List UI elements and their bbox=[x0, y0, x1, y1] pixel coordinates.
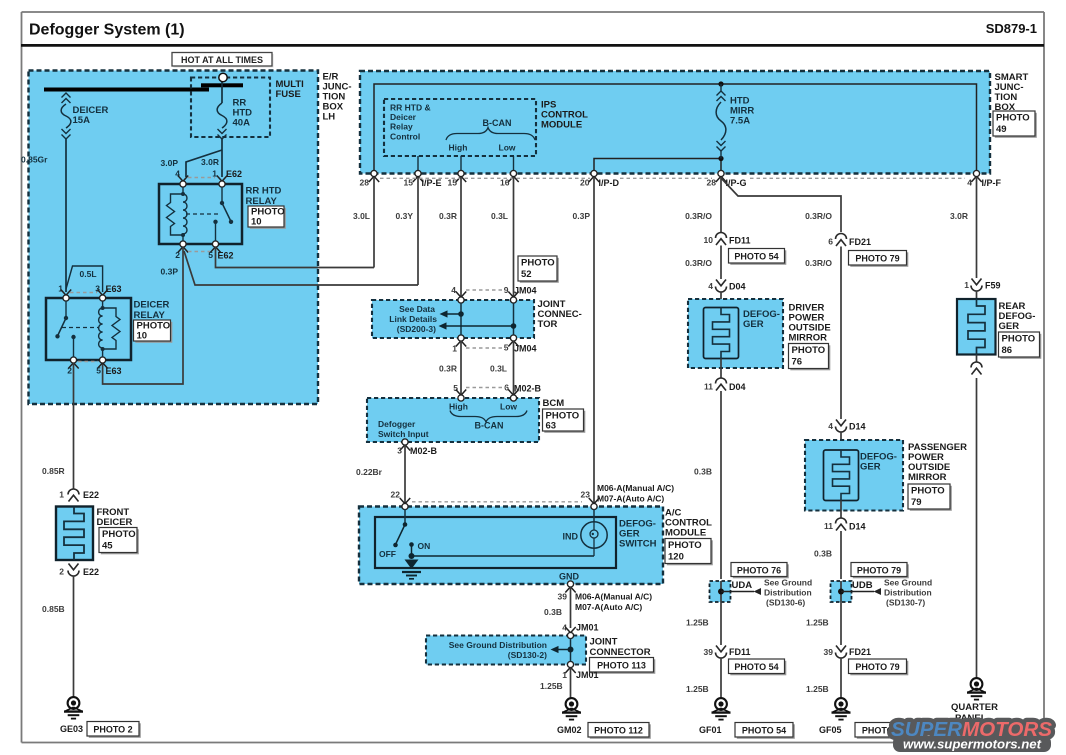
svg-text:Defogger: Defogger bbox=[378, 419, 416, 429]
svg-text:39: 39 bbox=[704, 647, 714, 657]
svg-text:5: 5 bbox=[96, 366, 101, 376]
svg-text:JM04: JM04 bbox=[514, 344, 537, 354]
svg-text:QUARTER: QUARTER bbox=[951, 702, 998, 713]
svg-text:76: 76 bbox=[792, 357, 803, 368]
svg-text:2: 2 bbox=[59, 567, 64, 577]
svg-text:79: 79 bbox=[911, 497, 922, 508]
svg-text:0.22Br: 0.22Br bbox=[356, 467, 383, 477]
svg-text:4: 4 bbox=[967, 178, 972, 188]
svg-text:6: 6 bbox=[828, 237, 833, 247]
svg-text:BCM: BCM bbox=[543, 398, 565, 409]
svg-text:(SD130-6): (SD130-6) bbox=[766, 598, 805, 608]
svg-text:IND: IND bbox=[563, 532, 579, 542]
svg-text:GND: GND bbox=[559, 572, 580, 582]
svg-text:RR HTD &: RR HTD & bbox=[390, 103, 431, 113]
svg-text:PHOTO 113: PHOTO 113 bbox=[597, 661, 646, 671]
svg-text:M07-A(Auto A/C): M07-A(Auto A/C) bbox=[575, 602, 642, 612]
svg-text:SWITCH: SWITCH bbox=[619, 539, 657, 550]
svg-text:10: 10 bbox=[251, 217, 262, 228]
svg-text:0.3L: 0.3L bbox=[491, 211, 508, 221]
svg-text:B-CAN: B-CAN bbox=[475, 421, 504, 431]
svg-text:0.3R/O: 0.3R/O bbox=[805, 258, 832, 268]
svg-text:1.25B: 1.25B bbox=[686, 684, 709, 694]
svg-text:39: 39 bbox=[558, 592, 568, 602]
svg-text:1: 1 bbox=[562, 670, 567, 680]
svg-text:LH: LH bbox=[323, 112, 336, 123]
svg-text:PHOTO 112: PHOTO 112 bbox=[594, 726, 643, 736]
svg-text:0.3R: 0.3R bbox=[439, 211, 457, 221]
svg-text:DEICER: DEICER bbox=[97, 517, 133, 528]
svg-text:39: 39 bbox=[824, 647, 834, 657]
svg-text:1.25B: 1.25B bbox=[686, 618, 709, 628]
svg-text:49: 49 bbox=[996, 124, 1007, 135]
svg-text:Switch Input: Switch Input bbox=[378, 429, 429, 439]
svg-text:0.3B: 0.3B bbox=[544, 607, 562, 617]
svg-text:3.0R: 3.0R bbox=[950, 211, 968, 221]
svg-text:D14: D14 bbox=[849, 422, 866, 432]
svg-text:See Ground: See Ground bbox=[884, 578, 932, 588]
svg-text:JOINT: JOINT bbox=[590, 637, 618, 648]
svg-text:86: 86 bbox=[1002, 345, 1013, 356]
svg-text:I/P-F: I/P-F bbox=[982, 178, 1002, 188]
svg-text:TOR: TOR bbox=[538, 319, 558, 330]
svg-text:MODULE: MODULE bbox=[541, 120, 582, 131]
svg-text:28: 28 bbox=[360, 178, 370, 188]
svg-text:JM01: JM01 bbox=[576, 623, 599, 633]
svg-text:0.3B: 0.3B bbox=[694, 467, 712, 477]
svg-text:1.25B: 1.25B bbox=[806, 618, 829, 628]
svg-text:SD879-1: SD879-1 bbox=[986, 21, 1037, 36]
svg-text:3.0L: 3.0L bbox=[353, 211, 370, 221]
svg-text:PHOTO: PHOTO bbox=[911, 486, 945, 497]
svg-text:63: 63 bbox=[546, 421, 557, 432]
svg-text:MIRROR: MIRROR bbox=[789, 333, 828, 344]
svg-text:D04: D04 bbox=[729, 282, 746, 292]
svg-text:www.supermotors.net: www.supermotors.net bbox=[903, 737, 1042, 752]
svg-text:PHOTO: PHOTO bbox=[102, 529, 136, 540]
svg-text:PHOTO 2: PHOTO 2 bbox=[93, 725, 132, 735]
svg-text:E62: E62 bbox=[226, 169, 242, 179]
svg-text:0.3P: 0.3P bbox=[573, 211, 591, 221]
svg-text:PHOTO 54: PHOTO 54 bbox=[742, 726, 786, 736]
svg-text:9: 9 bbox=[504, 285, 509, 295]
svg-text:See Ground Distribution: See Ground Distribution bbox=[449, 640, 547, 650]
svg-text:15: 15 bbox=[404, 178, 414, 188]
svg-text:OFF: OFF bbox=[379, 549, 396, 559]
svg-text:UDB: UDB bbox=[852, 580, 873, 591]
svg-text:See Data: See Data bbox=[399, 304, 435, 314]
svg-text:Defogger System (1): Defogger System (1) bbox=[29, 22, 185, 39]
svg-text:HOT AT ALL TIMES: HOT AT ALL TIMES bbox=[181, 55, 263, 65]
svg-text:M06-A(Manual A/C): M06-A(Manual A/C) bbox=[597, 483, 674, 493]
svg-text:PHOTO 79: PHOTO 79 bbox=[855, 254, 899, 264]
svg-text:0.3L: 0.3L bbox=[490, 364, 507, 374]
svg-text:20: 20 bbox=[580, 178, 590, 188]
svg-text:28: 28 bbox=[707, 178, 717, 188]
svg-text:E22: E22 bbox=[83, 490, 99, 500]
svg-text:GER: GER bbox=[860, 462, 881, 473]
svg-text:11: 11 bbox=[824, 521, 833, 531]
svg-text:23: 23 bbox=[581, 490, 591, 500]
svg-text:MODULE: MODULE bbox=[665, 528, 706, 539]
svg-text:(SD130-7): (SD130-7) bbox=[886, 598, 925, 608]
svg-text:16: 16 bbox=[500, 178, 510, 188]
svg-text:15A: 15A bbox=[73, 115, 91, 126]
svg-text:M02-B: M02-B bbox=[410, 446, 438, 456]
svg-text:0.3P: 0.3P bbox=[161, 267, 179, 277]
svg-text:1.25B: 1.25B bbox=[806, 684, 829, 694]
svg-text:MIRROR: MIRROR bbox=[908, 472, 947, 483]
svg-text:E62: E62 bbox=[218, 251, 234, 261]
svg-text:D14: D14 bbox=[849, 522, 866, 532]
svg-text:M06-A(Manual A/C): M06-A(Manual A/C) bbox=[575, 592, 652, 602]
svg-text:45: 45 bbox=[102, 541, 113, 552]
svg-text:2: 2 bbox=[175, 250, 180, 260]
svg-text:1.25B: 1.25B bbox=[540, 681, 563, 691]
svg-text:F59: F59 bbox=[985, 281, 1001, 291]
svg-text:B-CAN: B-CAN bbox=[483, 118, 512, 128]
svg-text:Low: Low bbox=[500, 402, 517, 412]
svg-text:0.85Gr: 0.85Gr bbox=[21, 155, 48, 165]
svg-text:PHOTO: PHOTO bbox=[792, 345, 826, 356]
svg-text:See Ground: See Ground bbox=[764, 578, 812, 588]
svg-text:3: 3 bbox=[397, 446, 402, 456]
svg-text:FD11: FD11 bbox=[729, 236, 751, 246]
svg-text:High: High bbox=[449, 143, 468, 153]
svg-text:RELAY: RELAY bbox=[134, 310, 166, 321]
svg-text:JM01: JM01 bbox=[576, 670, 599, 680]
svg-text:0.3R: 0.3R bbox=[439, 364, 457, 374]
svg-text:Distribution: Distribution bbox=[884, 588, 932, 598]
svg-text:PHOTO 79: PHOTO 79 bbox=[855, 662, 899, 672]
svg-text:UDA: UDA bbox=[732, 580, 753, 591]
svg-text:120: 120 bbox=[668, 552, 684, 563]
svg-text:High: High bbox=[449, 402, 468, 412]
svg-text:Low: Low bbox=[499, 143, 516, 153]
svg-text:15: 15 bbox=[448, 178, 458, 188]
svg-text:PHOTO: PHOTO bbox=[668, 540, 702, 551]
svg-text:0.85R: 0.85R bbox=[42, 466, 65, 476]
svg-text:GM02: GM02 bbox=[557, 725, 582, 735]
svg-text:GE03: GE03 bbox=[60, 724, 83, 734]
svg-text:10: 10 bbox=[137, 331, 148, 342]
svg-text:PHOTO 54: PHOTO 54 bbox=[734, 252, 778, 262]
svg-text:DEICER: DEICER bbox=[134, 300, 170, 311]
svg-text:(SD130-2): (SD130-2) bbox=[508, 650, 547, 660]
svg-text:Control: Control bbox=[390, 131, 420, 141]
svg-text:PHOTO 54: PHOTO 54 bbox=[734, 662, 778, 672]
svg-text:Distribution: Distribution bbox=[764, 588, 812, 598]
svg-text:RR HTD: RR HTD bbox=[246, 186, 282, 197]
svg-text:4: 4 bbox=[708, 281, 713, 291]
svg-text:GF01: GF01 bbox=[699, 725, 722, 735]
svg-text:FD21: FD21 bbox=[849, 237, 871, 247]
svg-text:1: 1 bbox=[59, 490, 64, 500]
svg-text:E63: E63 bbox=[106, 366, 122, 376]
svg-text:Link Details: Link Details bbox=[389, 314, 437, 324]
svg-text:2: 2 bbox=[67, 366, 72, 376]
svg-text:Relay: Relay bbox=[390, 122, 413, 132]
svg-text:0.3R/O: 0.3R/O bbox=[685, 211, 712, 221]
svg-text:GER: GER bbox=[999, 321, 1020, 332]
svg-text:3.0P: 3.0P bbox=[161, 158, 179, 168]
svg-text:0.3B: 0.3B bbox=[814, 549, 832, 559]
svg-text:0.85B: 0.85B bbox=[42, 604, 65, 614]
svg-text:0.3R/O: 0.3R/O bbox=[685, 258, 712, 268]
svg-text:0.5L: 0.5L bbox=[80, 269, 97, 279]
svg-text:5: 5 bbox=[504, 343, 509, 353]
svg-text:CONNECTOR: CONNECTOR bbox=[590, 647, 651, 658]
svg-text:11: 11 bbox=[704, 382, 713, 392]
svg-text:40A: 40A bbox=[233, 118, 251, 129]
svg-text:PHOTO 79: PHOTO 79 bbox=[857, 565, 901, 575]
svg-text:1: 1 bbox=[964, 280, 969, 290]
svg-text:1: 1 bbox=[452, 344, 457, 354]
svg-text:PHOTO: PHOTO bbox=[521, 258, 555, 269]
svg-text:4: 4 bbox=[451, 285, 456, 295]
svg-text:ON: ON bbox=[418, 541, 431, 551]
svg-text:PHOTO: PHOTO bbox=[996, 113, 1030, 124]
svg-text:52: 52 bbox=[521, 269, 532, 280]
svg-text:E22: E22 bbox=[83, 567, 99, 577]
svg-text:FUSE: FUSE bbox=[276, 89, 301, 100]
svg-text:Deicer: Deicer bbox=[390, 112, 417, 122]
svg-text:I/P-E: I/P-E bbox=[422, 178, 442, 188]
svg-text:22: 22 bbox=[391, 490, 401, 500]
svg-text:4: 4 bbox=[828, 421, 833, 431]
svg-text:PHOTO: PHOTO bbox=[1002, 334, 1036, 345]
svg-text:GF05: GF05 bbox=[819, 725, 842, 735]
svg-text:(SD200-3): (SD200-3) bbox=[397, 324, 436, 334]
svg-text:10: 10 bbox=[704, 235, 714, 245]
svg-text:GER: GER bbox=[743, 319, 764, 330]
svg-text:FD11: FD11 bbox=[729, 647, 751, 657]
svg-text:FD21: FD21 bbox=[849, 647, 871, 657]
svg-text:0.3Y: 0.3Y bbox=[396, 211, 414, 221]
svg-text:E63: E63 bbox=[106, 284, 122, 294]
svg-text:RELAY: RELAY bbox=[246, 196, 278, 207]
svg-text:0.3R/O: 0.3R/O bbox=[805, 211, 832, 221]
svg-text:3.0R: 3.0R bbox=[201, 157, 219, 167]
svg-text:7.5A: 7.5A bbox=[730, 116, 750, 127]
svg-text:M07-A(Auto A/C): M07-A(Auto A/C) bbox=[597, 494, 664, 504]
svg-text:PHOTO 76: PHOTO 76 bbox=[737, 565, 781, 575]
svg-text:M02-B: M02-B bbox=[514, 384, 542, 394]
svg-text:I/P-D: I/P-D bbox=[599, 178, 620, 188]
svg-text:D04: D04 bbox=[729, 382, 746, 392]
